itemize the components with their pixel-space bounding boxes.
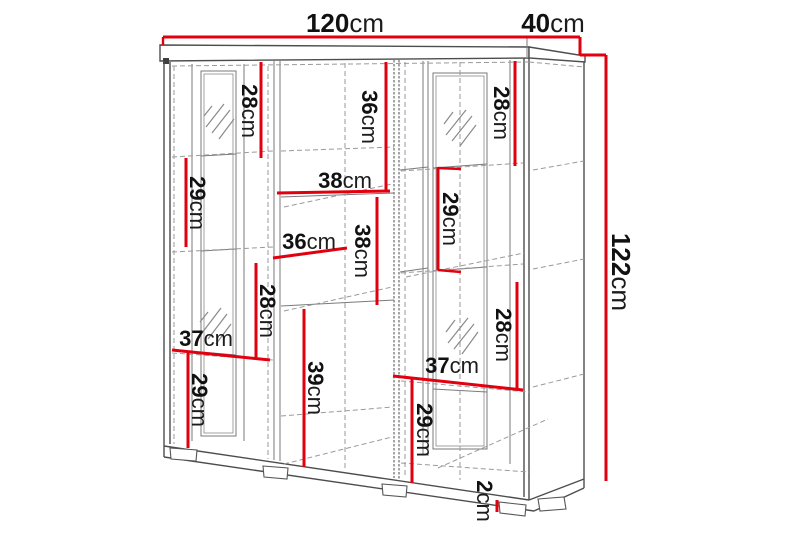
foot — [263, 466, 288, 479]
divider-right-zigzag — [394, 60, 399, 479]
top-panel-side — [529, 47, 585, 62]
dim-label-28-left-middle: 28cm — [255, 284, 280, 338]
feet — [170, 448, 566, 516]
dim-label-height-122: 122cm — [606, 233, 636, 311]
dim-label-37-left-shelf: 37cm — [179, 326, 233, 351]
dim-label-29-right-bottom: 29cm — [412, 403, 437, 457]
foot — [538, 497, 566, 511]
dimension-lines — [163, 37, 606, 512]
dim-label-28-right-top: 28cm — [489, 86, 514, 140]
divider-left — [274, 61, 280, 461]
dim-label-29-left-upper: 29cm — [185, 176, 210, 230]
dim-label-37-right-shelf: 37cm — [425, 353, 479, 378]
dim-label-38-middle: 38cm — [350, 224, 375, 278]
dim-label-width-120: 120cm — [306, 8, 384, 38]
dimension-labels: 120cm 40cm 122cm 28cm 36cm 28cm 29cm 38c… — [179, 8, 636, 522]
furniture-dimension-diagram: 120cm 40cm 122cm 28cm 36cm 28cm 29cm 38c… — [0, 0, 800, 533]
dim-label-38-shelf-upper: 38cm — [318, 168, 372, 193]
dim-label-28-left-top: 28cm — [237, 84, 262, 138]
foot — [499, 502, 526, 516]
dim-label-29-left-bottom: 29cm — [187, 373, 212, 427]
dim-label-28-right-middle: 28cm — [491, 308, 516, 362]
dim-label-2-plinth: 2cm — [472, 480, 497, 522]
dim-label-36-shelf-lower: 36cm — [282, 229, 336, 254]
dim-label-39-middle-bottom: 39cm — [303, 361, 328, 415]
foot — [170, 448, 197, 461]
top-panel-front — [160, 45, 529, 61]
dim-label-29-right-upper: 29cm — [438, 192, 463, 246]
foot — [382, 484, 407, 497]
diagram-canvas: 120cm 40cm 122cm 28cm 36cm 28cm 29cm 38c… — [0, 0, 800, 533]
dim-label-36-middle-top: 36cm — [357, 90, 382, 144]
dim-label-depth-40: 40cm — [521, 8, 585, 38]
